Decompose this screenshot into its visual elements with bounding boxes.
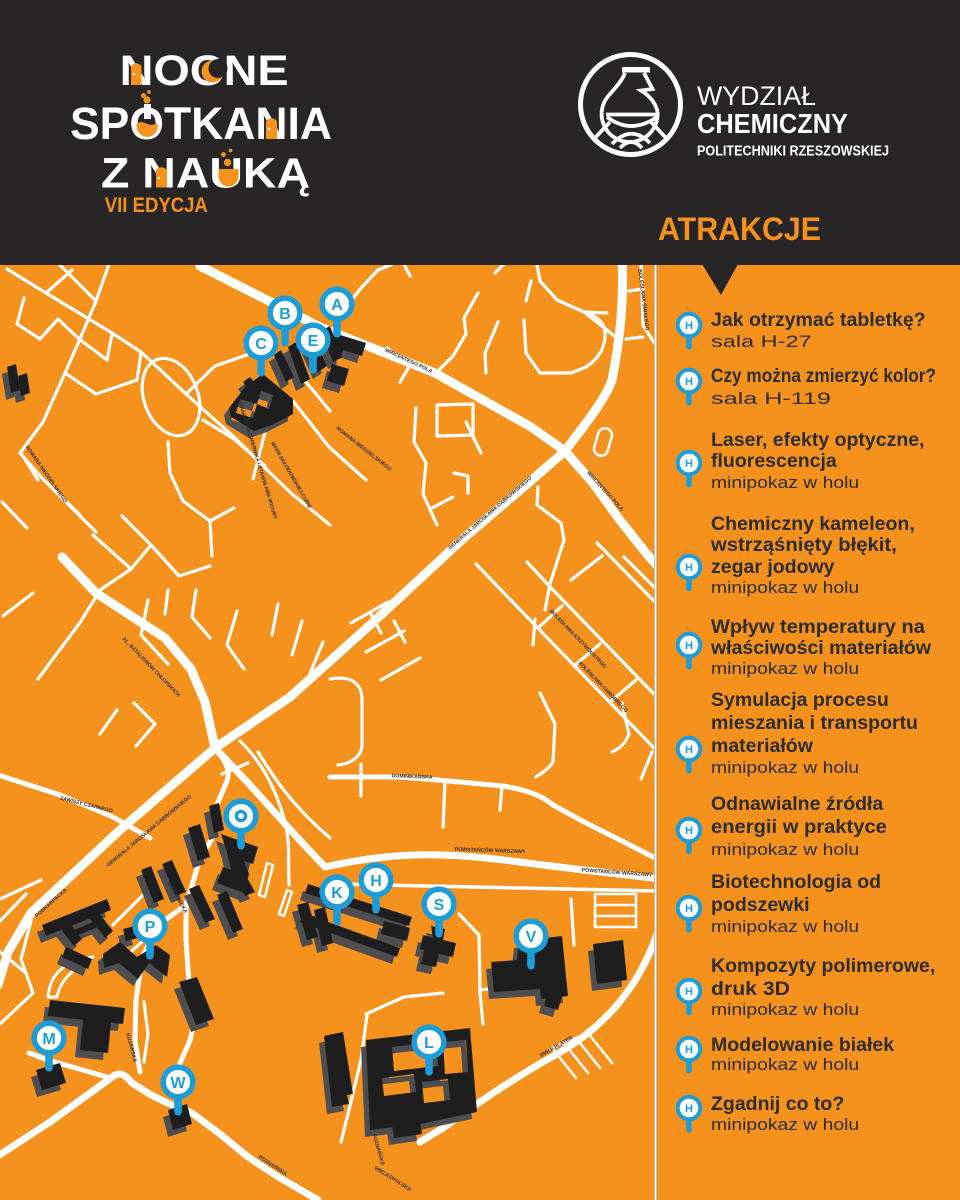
svg-text:V: V	[526, 929, 537, 946]
svg-text:H: H	[685, 1103, 693, 1115]
svg-text:podszewki: podszewki	[711, 894, 810, 916]
svg-text:B: B	[279, 306, 291, 323]
svg-text:właściwości materiałów: właściwości materiałów	[710, 637, 932, 659]
svg-text:W: W	[170, 1075, 186, 1092]
svg-text:A: A	[331, 297, 343, 314]
svg-text:H: H	[685, 640, 693, 652]
svg-text:Chemiczny kameleon,: Chemiczny kameleon,	[711, 513, 915, 535]
svg-text:S: S	[434, 897, 445, 914]
svg-text:Z NAUKĄ: Z NAUKĄ	[101, 151, 310, 198]
svg-text:minipokaz w holu: minipokaz w holu	[711, 758, 859, 777]
svg-text:Modelowanie białek: Modelowanie białek	[711, 1034, 894, 1056]
svg-text:materiałów: materiałów	[711, 735, 814, 757]
svg-text:ATRAKCJE: ATRAKCJE	[658, 211, 821, 247]
svg-text:minipokaz w holu: minipokaz w holu	[711, 1000, 859, 1019]
svg-text:WYDZIAŁ: WYDZIAŁ	[697, 81, 816, 111]
svg-text:H: H	[685, 744, 693, 756]
svg-text:Wpływ temperatury na: Wpływ temperatury na	[711, 616, 926, 638]
svg-text:H: H	[685, 986, 693, 998]
svg-text:zegar jodowy: zegar jodowy	[711, 556, 835, 578]
svg-text:H: H	[685, 320, 693, 332]
svg-text:druk 3D: druk 3D	[711, 979, 790, 1000]
svg-text:minipokaz w holu: minipokaz w holu	[711, 1055, 859, 1074]
svg-text:Jak otrzymać tabletkę?: Jak otrzymać tabletkę?	[711, 309, 926, 331]
svg-text:minipokaz w holu: minipokaz w holu	[711, 840, 859, 859]
svg-text:Biotechnologia od: Biotechnologia od	[711, 871, 881, 893]
svg-text:H: H	[685, 458, 693, 470]
svg-text:Czy można zmierzyć kolor?: Czy można zmierzyć kolor?	[711, 365, 936, 387]
svg-text:minipokaz w holu: minipokaz w holu	[711, 917, 859, 936]
svg-text:VII EDYCJA: VII EDYCJA	[105, 194, 208, 217]
svg-text:H: H	[685, 825, 693, 837]
svg-text:minipokaz w holu: minipokaz w holu	[711, 659, 859, 678]
svg-text:mieszania i transportu: mieszania i transportu	[711, 712, 918, 734]
svg-text:H: H	[370, 873, 382, 890]
svg-text:Odnawialne źródła: Odnawialne źródła	[711, 793, 883, 815]
svg-text:minipokaz w holu: minipokaz w holu	[711, 578, 859, 597]
svg-text:sala H-119: sala H-119	[711, 389, 831, 408]
svg-text:wstrząśnięty błękit,: wstrząśnięty błękit,	[710, 534, 897, 556]
svg-text:C: C	[255, 336, 267, 353]
svg-text:E: E	[308, 333, 319, 350]
svg-text:P: P	[145, 919, 156, 936]
svg-text:H: H	[685, 376, 693, 388]
svg-text:sala H-27: sala H-27	[711, 333, 812, 351]
svg-text:CHEMICZNY: CHEMICZNY	[697, 108, 848, 139]
svg-text:H: H	[685, 1044, 693, 1056]
svg-text:Symulacja procesu: Symulacja procesu	[711, 689, 889, 711]
svg-text:energii w praktyce: energii w praktyce	[711, 816, 887, 838]
svg-text:SPOTKANIA: SPOTKANIA	[70, 98, 332, 149]
svg-text:Laser, efekty optyczne,: Laser, efekty optyczne,	[711, 429, 925, 451]
svg-text:minipokaz w holu: minipokaz w holu	[711, 1115, 859, 1134]
svg-text:L: L	[424, 1035, 434, 1052]
svg-text:fluorescencja: fluorescencja	[711, 450, 837, 472]
svg-text:Zgadnij co to?: Zgadnij co to?	[711, 1093, 844, 1115]
svg-text:K: K	[331, 885, 343, 902]
svg-text:minipokaz w holu: minipokaz w holu	[711, 473, 859, 492]
svg-text:H: H	[685, 903, 693, 915]
svg-text:Kompozyty polimerowe,: Kompozyty polimerowe,	[711, 955, 935, 977]
svg-text:POLITECHNIKI RZESZOWSKIEJ: POLITECHNIKI RZESZOWSKIEJ	[697, 143, 889, 160]
svg-text:M: M	[42, 1031, 55, 1048]
svg-text:H: H	[685, 562, 693, 574]
